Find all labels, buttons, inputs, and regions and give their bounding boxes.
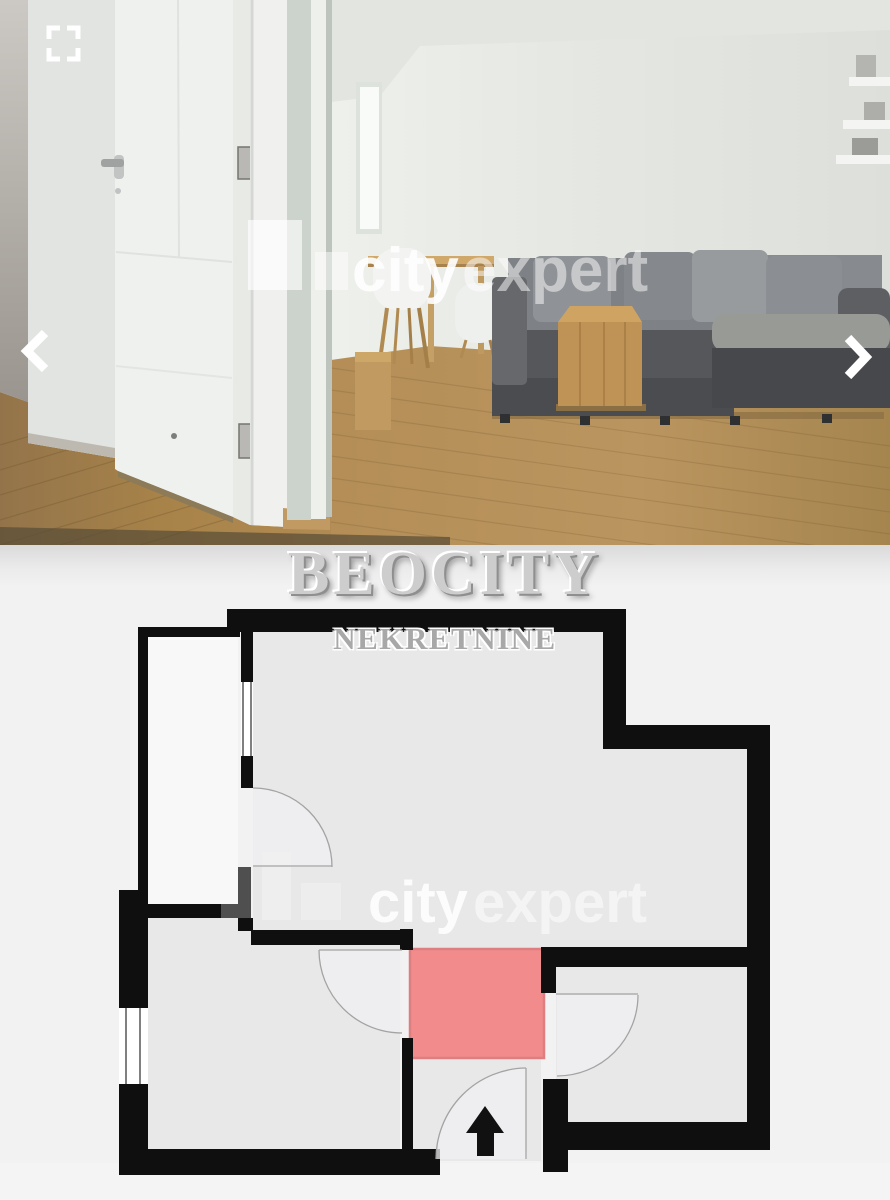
svg-text:expert: expert bbox=[462, 236, 648, 305]
svg-text:expert: expert bbox=[473, 870, 647, 935]
svg-text:city: city bbox=[352, 236, 459, 305]
svg-text:city: city bbox=[368, 870, 468, 935]
